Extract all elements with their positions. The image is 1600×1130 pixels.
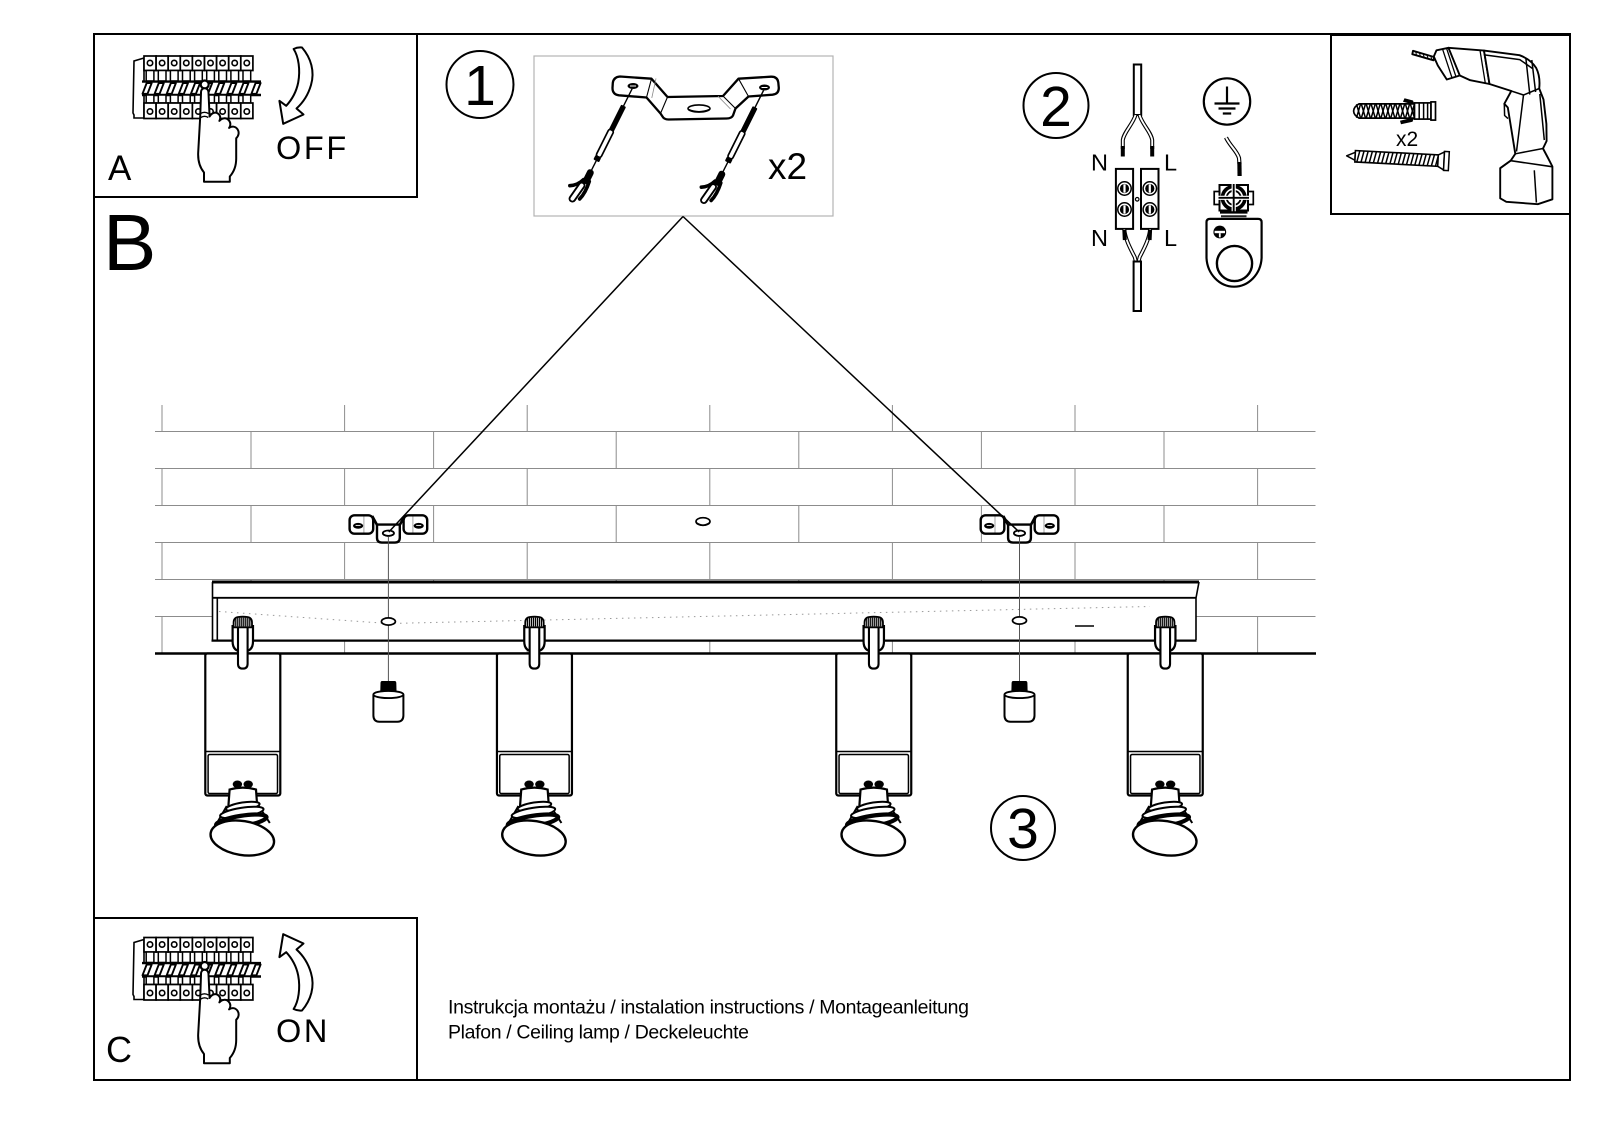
- svg-text:A: A: [108, 149, 132, 188]
- svg-text:x2: x2: [1396, 128, 1418, 151]
- svg-text:2: 2: [1040, 75, 1072, 139]
- svg-text:OFF: OFF: [276, 130, 349, 166]
- svg-text:ON: ON: [276, 1013, 330, 1049]
- svg-text:Plafon / Ceiling lamp / Deckel: Plafon / Ceiling lamp / Deckeleuchte: [448, 1021, 749, 1043]
- svg-text:C: C: [106, 1029, 132, 1070]
- svg-text:N: N: [1091, 225, 1108, 251]
- svg-text:L: L: [1164, 150, 1177, 176]
- svg-text:L: L: [1164, 225, 1177, 251]
- svg-text:N: N: [1091, 150, 1108, 176]
- svg-text:3: 3: [1007, 797, 1039, 861]
- svg-text:1: 1: [464, 54, 496, 118]
- svg-text:Instrukcja montażu / instalati: Instrukcja montażu / instalation instruc…: [448, 996, 969, 1018]
- svg-text:B: B: [103, 198, 156, 287]
- svg-text:x2: x2: [768, 146, 807, 187]
